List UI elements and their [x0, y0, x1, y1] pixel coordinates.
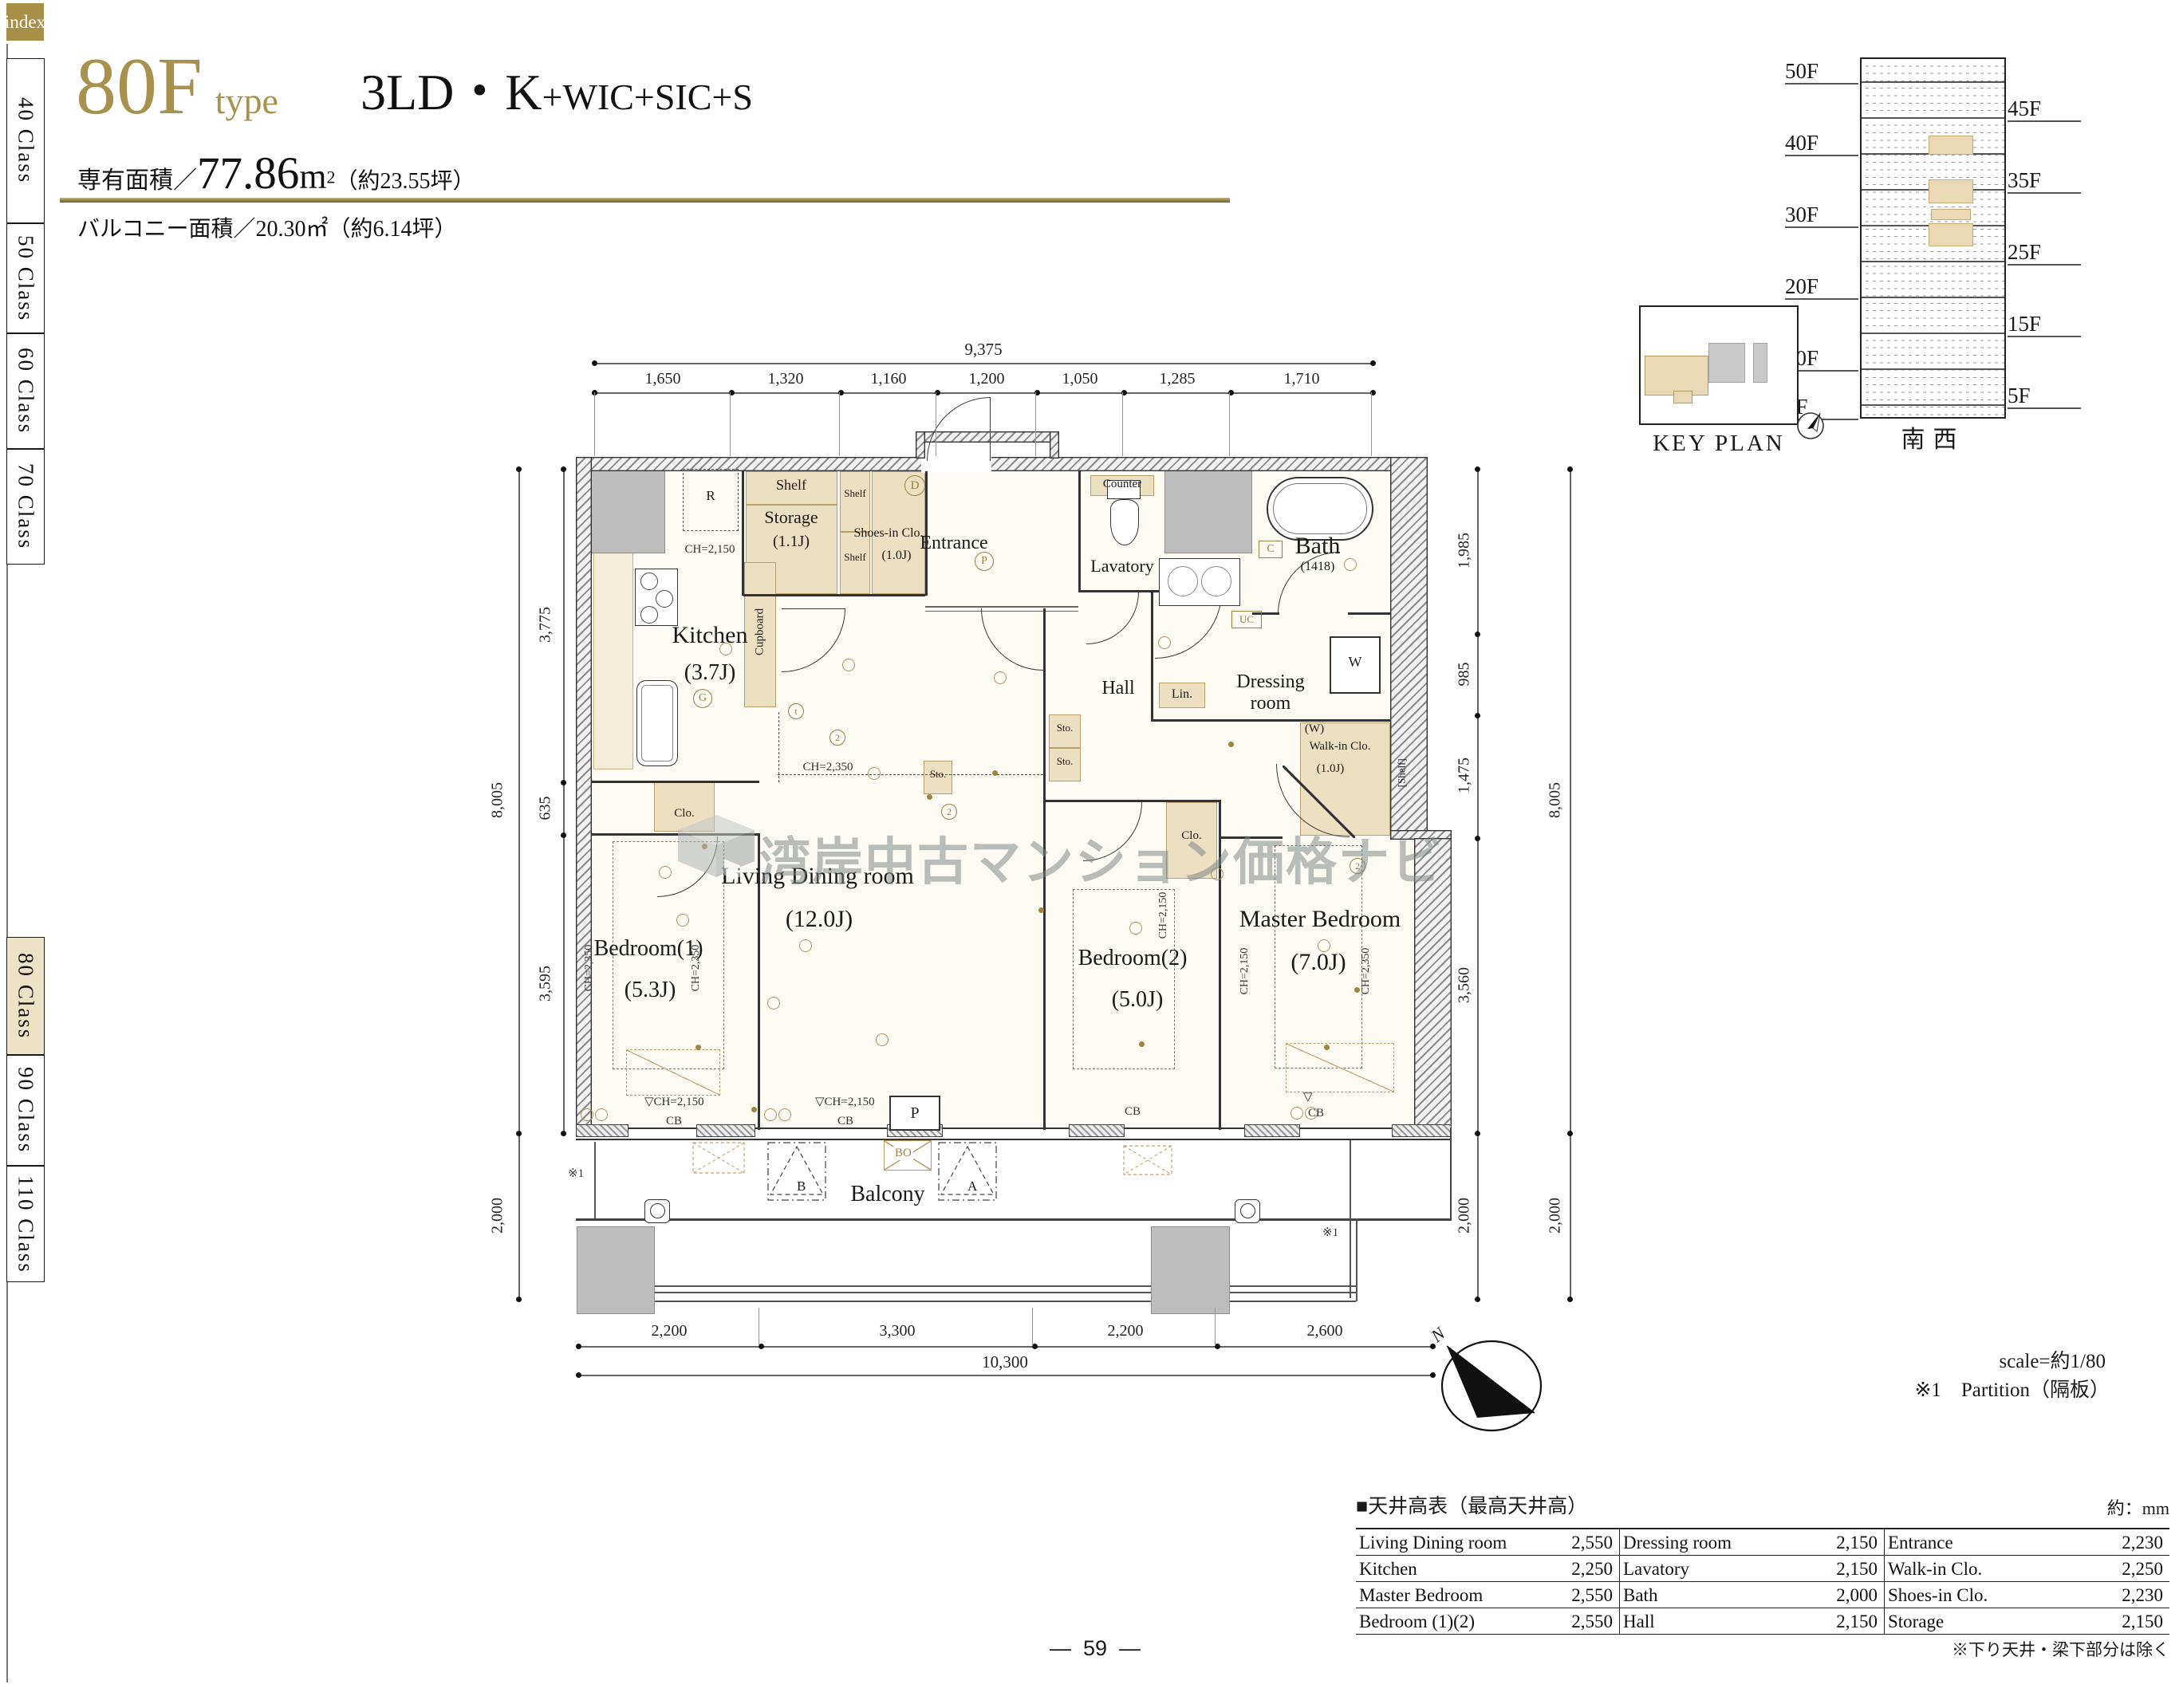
balcony-partition [1350, 1140, 1351, 1298]
vanity-bowl [1168, 566, 1198, 596]
fixture-icon [1290, 1107, 1303, 1120]
walkin-shelf-label: [Shelf] [1397, 741, 1409, 805]
fixture-icon [719, 643, 732, 655]
dim-bottom-total: 10,300 [982, 1352, 1028, 1372]
floor-label-20f: 20F [1785, 274, 1858, 300]
washer-label: W [1349, 654, 1362, 670]
marker-d: D [904, 475, 925, 496]
sidebar-item-label: 110 Class [14, 1175, 38, 1273]
table-cell: Bath [1619, 1582, 1804, 1608]
partition-note: ※1 [568, 1166, 584, 1181]
table-cell: 2,150 [1804, 1556, 1884, 1582]
sidebar-item-50class[interactable]: 50 Class [6, 223, 45, 333]
dim-top-seg: 1,650 [645, 370, 681, 388]
fixture-icon [876, 1033, 889, 1046]
balcony-area: バルコニー面積／20.30㎡（約6.14坪） [77, 217, 456, 242]
room-label-hall: Hall [1101, 678, 1134, 699]
futon-rack-icon [692, 1142, 745, 1174]
dim-line [578, 1346, 1432, 1348]
balcony-rail [1230, 1301, 1356, 1302]
sidebar-item-60class[interactable]: 60 Class [6, 333, 45, 449]
sidebar-item-label: 60 Class [14, 348, 38, 434]
ch-label-bedroom1-left: CH=2,350 [583, 932, 596, 1004]
page-number-dash: — [1050, 1636, 1071, 1660]
fixture-icon [868, 767, 881, 780]
room-label-bedroom2: Bedroom(2) [1078, 946, 1188, 970]
floor-label-45f: 45F [2008, 96, 2081, 122]
fridge-label: R [706, 488, 715, 503]
entrance-step-line [925, 606, 1078, 608]
dim-line [518, 469, 520, 1299]
dim-top-total: 9,375 [964, 340, 1002, 360]
dim-dot [1567, 1131, 1573, 1136]
triangle-icon: ▽ [815, 1096, 825, 1108]
window-sash [576, 1124, 628, 1137]
fixture-icon [595, 1108, 608, 1121]
table-cell: Hall [1619, 1608, 1804, 1635]
dim-top-seg: 1,050 [1062, 370, 1098, 388]
table-cell: 2,550 [1538, 1608, 1619, 1635]
room-label-kitchen: Kitchen [672, 622, 748, 649]
layout-main: 3LD・K [361, 64, 542, 120]
sidebar-item-110class[interactable]: 110 Class [6, 1166, 45, 1282]
column [1151, 1226, 1230, 1314]
dim-ext [730, 392, 731, 456]
unit-highlight [1929, 223, 1973, 246]
linen-label: Lin. [1172, 687, 1192, 702]
sidebar-item-label: 50 Class [14, 235, 38, 321]
wall-bath-dressing [1348, 612, 1390, 615]
keyplan-compass-icon [1793, 405, 1831, 443]
window-sash [1392, 1124, 1452, 1137]
unit-highlight [1931, 209, 1971, 220]
exclusive-area: 専有面積／77.86m2（約23.55坪） [77, 148, 475, 199]
index-badge[interactable]: index [6, 3, 44, 41]
table-cell: 2,150 [2082, 1608, 2169, 1635]
fixture-icon [695, 1045, 701, 1050]
dim-right-seg: 985 [1456, 643, 1474, 706]
balcony-rail [655, 1301, 1151, 1302]
balcony-right-edge [1450, 1128, 1452, 1221]
hatch-marker-b-label: B [797, 1179, 806, 1194]
area-value: 77.86 [197, 148, 299, 199]
dim-dot [516, 1297, 522, 1302]
bed-outline [1286, 1043, 1394, 1092]
wall-dressing-bottom [1151, 719, 1390, 722]
balcony-rail-end [1356, 1218, 1357, 1301]
table-cell: Bedroom (1)(2) [1356, 1608, 1538, 1635]
compass-icon [1436, 1336, 1547, 1435]
dim-top-seg: 1,710 [1284, 370, 1320, 388]
dim-dot [1032, 1344, 1038, 1349]
floor-label-35f: 35F [2008, 168, 2081, 194]
shelf-box [840, 471, 870, 532]
marker-2: 2 [829, 730, 845, 746]
floor-label-25f: 25F [2008, 240, 2081, 266]
table-cell: 2,150 [1804, 1608, 1884, 1635]
dim-top-seg: 1,200 [969, 370, 1005, 388]
dim-dot [576, 1372, 581, 1378]
bo-marker-label: BO [893, 1147, 913, 1160]
dim-dot [561, 1131, 566, 1136]
dim-top-seg: 1,285 [1160, 370, 1196, 388]
fixture-icon [1139, 1041, 1145, 1047]
keyplan-neighbor-block [1708, 343, 1745, 383]
table-cell: Kitchen [1356, 1556, 1538, 1582]
table-cell: Living Dining room [1356, 1528, 1538, 1556]
dim-line [594, 392, 1373, 394]
storage-small-label: Sto. [1057, 722, 1074, 734]
table-cell: 2,150 [1804, 1528, 1884, 1556]
dim-dot [1475, 632, 1480, 637]
floor-line [1862, 404, 2004, 406]
wall-kitchen-right [742, 471, 744, 596]
fixture-icon [581, 1108, 593, 1121]
dim-bottom-seg: 2,200 [652, 1322, 688, 1340]
floor-line [1862, 117, 2004, 119]
room-label-shoes: Shoes-in Clo. [853, 526, 923, 541]
room-size-storage: (1.1J) [773, 533, 810, 550]
dim-dot [1215, 1344, 1220, 1349]
unit-highlight [1929, 136, 1973, 155]
keyplan-building-footprint [1673, 391, 1692, 403]
bathtub-inner [1273, 483, 1367, 534]
fixture-icon [1305, 1107, 1318, 1120]
dim-dot [1475, 466, 1480, 472]
dim-dot [561, 466, 566, 472]
door-entrance [927, 397, 991, 461]
ceiling-table: Living Dining room 2,550 Dressing room 2… [1356, 1528, 2169, 1635]
unit-highlight [1929, 179, 1973, 203]
room-label-dressing: Dressing room [1215, 671, 1326, 714]
keyplan-title: KEY PLAN [1639, 431, 1799, 456]
bed-outline [626, 1049, 720, 1096]
balcony-outer-line [576, 1218, 1452, 1221]
balcony-rail [1230, 1285, 1356, 1287]
dim-right-balcony: 2,000 [1456, 1184, 1474, 1248]
dim-dot [1430, 1372, 1436, 1378]
cb-label: CB [666, 1115, 682, 1128]
room-label-bath: Bath [1295, 533, 1341, 560]
page-number-value: 59 [1083, 1636, 1107, 1660]
ch-boundary-living [778, 774, 1043, 775]
dim-dot [1567, 1297, 1573, 1302]
balcony-partition [594, 1142, 596, 1218]
dim-left-seg: 3,775 [537, 593, 555, 657]
floor-line [1862, 81, 2004, 83]
area-tsubo: （約23.55坪） [335, 169, 475, 194]
table-cell: Entrance [1884, 1528, 2082, 1556]
dim-left-seg: 3,595 [537, 952, 555, 1016]
stove-burner [640, 606, 658, 624]
ch-label-living-bottom: ▽CH=2,150 [815, 1094, 875, 1109]
table-cell: 2,230 [2082, 1528, 2169, 1556]
sidebar-item-label: 70 Class [14, 463, 38, 549]
gold-rule [60, 198, 1230, 203]
ch-label-kitchen: CH=2,150 [684, 543, 735, 557]
dim-dot [1475, 1297, 1480, 1302]
floor-line [1862, 333, 2004, 334]
dim-right-balcony2: 2,000 [1547, 1184, 1565, 1248]
dim-dot [1567, 466, 1573, 472]
fixture-icon [799, 939, 812, 952]
ch-boundary-kitchen [778, 712, 779, 782]
marker-t: t [788, 703, 804, 719]
room-label-storage: Storage [764, 508, 818, 528]
window-sash [696, 1124, 755, 1137]
dim-line [594, 363, 1373, 364]
shelf-label: Shelf [844, 552, 865, 564]
wall-entrance-jog [916, 431, 925, 458]
room-size-bath: (1418) [1301, 560, 1335, 574]
dim-dot [516, 466, 522, 472]
partition-legend: ※1 Partition（隔板） [1850, 1379, 2110, 1402]
fixture-icon [751, 1107, 757, 1112]
dim-bottom-seg: 2,200 [1108, 1322, 1144, 1340]
balcony-rail [1230, 1292, 1356, 1293]
room-size-bedroom2: (5.0J) [1112, 987, 1164, 1012]
fixture-icon [1158, 636, 1171, 649]
ch-label-living-top: CH=2,350 [798, 761, 857, 774]
scale-note: scale=約1/80 [1866, 1351, 2106, 1373]
wall-lavatory-left [1078, 471, 1081, 592]
watermark-logo [678, 815, 755, 877]
table-cell: Master Bedroom [1356, 1582, 1538, 1608]
dim-ext [1371, 392, 1372, 456]
shelf-label: Shelf [776, 477, 806, 493]
dim-top-seg: 1,160 [871, 370, 907, 388]
dim-dot [592, 360, 597, 366]
dim-dot [561, 832, 566, 838]
cb-label: CB [1125, 1105, 1141, 1119]
fixture-icon [764, 1108, 777, 1121]
sidebar-item-label: 90 Class [14, 1067, 38, 1153]
floor-label-30f: 30F [1785, 203, 1858, 228]
dim-ext [759, 1308, 759, 1346]
plan-type-title: 80F type [76, 41, 278, 132]
window-line [576, 1139, 1452, 1140]
kitchen-counter [593, 553, 633, 769]
room-size-master: (7.0J) [1290, 949, 1346, 976]
floor-line [1862, 297, 2004, 298]
dim-left-seg: 635 [537, 777, 555, 840]
stove-burner [640, 573, 658, 590]
room-size-shoes: (1.0J) [882, 549, 912, 563]
ch-label-bedroom1-right: CH=2,350 [690, 932, 703, 1004]
watermark-text: 湾岸中古マンション価格ナビ [759, 821, 1444, 895]
table-cell: 2,000 [1804, 1582, 1884, 1608]
fixture-icon [676, 914, 689, 927]
fixture-icon [1354, 987, 1360, 993]
table-cell: 2,550 [1538, 1528, 1619, 1556]
dim-ext [1215, 1308, 1216, 1346]
layout-sub: +WIC+SIC+S [542, 77, 753, 117]
shelf-label: Shelf [844, 488, 865, 500]
column [587, 461, 665, 553]
elevation-direction: 南西 [1860, 427, 2006, 454]
dim-left-total: 8,005 [489, 769, 507, 832]
dim-right-seg: 1,475 [1456, 744, 1474, 808]
wall-storage-bottom [743, 594, 925, 596]
dim-left-balcony: 2,000 [489, 1184, 507, 1248]
ceiling-table-title: ■天井高表（最高天井高） [1356, 1496, 1587, 1518]
room-label-bedroom1: Bedroom(1) [594, 936, 703, 961]
page: index 40 Class 50 Class 60 Class 70 Clas… [0, 0, 2183, 1708]
floor-label-50f: 50F [1785, 59, 1858, 85]
column [1164, 464, 1252, 553]
dim-ext [1032, 1308, 1033, 1346]
ceiling-table-footnote: ※下り天井・梁下部分は除く [1819, 1641, 2169, 1660]
page-number: — 59 — [1050, 1636, 1141, 1660]
wall-left [576, 457, 592, 1132]
balcony-drain-hole [1240, 1203, 1255, 1218]
wall-entrance-jog [1050, 431, 1059, 458]
dim-ext [839, 392, 840, 456]
balcony-rail [655, 1292, 1151, 1293]
cb-label: CB [837, 1115, 853, 1128]
counter-label: Counter [1103, 478, 1141, 491]
sidebar-item-80class[interactable]: 80 Class [6, 937, 45, 1055]
pipe-space-label: P [910, 1104, 919, 1122]
fixture-icon [1038, 907, 1044, 913]
room-label-lavatory: Lavatory [1090, 557, 1153, 577]
fixture-icon [1344, 558, 1357, 571]
dim-dot [759, 1344, 764, 1349]
room-size-living: (12.0J) [786, 906, 853, 933]
marker-2: 2 [941, 804, 957, 820]
fixture-icon [1318, 939, 1330, 952]
marker-p: P [975, 552, 994, 571]
kitchen-sink [636, 680, 678, 766]
fixture-icon [992, 770, 998, 776]
marker-g: G [693, 689, 712, 708]
floor-label-15f: 15F [2008, 312, 2081, 337]
keyplan-neighbor-block [1753, 343, 1767, 383]
area-label: 専有面積／ [77, 167, 197, 194]
fixture-icon [659, 866, 672, 879]
table-cell: Storage [1884, 1608, 2082, 1635]
page-number-dash: — [1119, 1636, 1141, 1660]
fixture-icon [767, 997, 780, 1009]
dim-dot [1475, 836, 1480, 841]
dim-line [1570, 469, 1571, 1299]
sidebar-item-label: 40 Class [14, 97, 38, 183]
ch-label-master-right: CH=2,350 [1360, 935, 1373, 1007]
triangle-icon: ▽ [1303, 1089, 1313, 1104]
vanity-bowl [1201, 566, 1231, 596]
pipe-space: P [889, 1096, 940, 1131]
dim-ext [1122, 392, 1123, 456]
table-cell: 2,250 [1538, 1556, 1619, 1582]
table-cell: 2,230 [2082, 1582, 2169, 1608]
dim-dot [1430, 1344, 1436, 1349]
floor-label-40f: 40F [1785, 131, 1858, 156]
wall-dressing-left [1151, 592, 1153, 721]
balcony-drain-hole [650, 1203, 665, 1218]
floor-line [1862, 368, 2004, 370]
fixture-icon [842, 659, 855, 671]
dim-right-seg: 3,560 [1456, 954, 1474, 1017]
fixture-icon [927, 794, 932, 800]
floor-label-5f: 5F [2008, 384, 2081, 409]
marker-c: C [1259, 541, 1283, 558]
fixture-icon [1129, 922, 1142, 935]
table-cell: Lavatory [1619, 1556, 1804, 1582]
stove-burner [656, 590, 673, 608]
hatch-marker-a-label: A [967, 1179, 977, 1194]
column [577, 1226, 655, 1314]
ch-label-master-left: CH=2,150 [1239, 935, 1251, 1007]
table-cell: 2,250 [2082, 1556, 2169, 1582]
dim-bottom-seg: 3,300 [880, 1322, 916, 1340]
dim-ext [1229, 392, 1230, 456]
dim-dot [576, 1344, 581, 1349]
fixture-icon [1324, 1045, 1330, 1050]
table-cell: 2,550 [1538, 1582, 1619, 1608]
table-cell: Shoes-in Clo. [1884, 1582, 2082, 1608]
table-cell: Dressing room [1619, 1528, 1804, 1556]
room-label-master: Master Bedroom [1239, 906, 1401, 933]
room-label-balcony: Balcony [850, 1182, 924, 1206]
dim-ext [594, 392, 595, 456]
storage-small-label: Sto. [930, 769, 947, 781]
marker-uc: UC [1231, 611, 1262, 628]
fixture-icon [1228, 742, 1234, 747]
dim-dot [516, 1131, 522, 1136]
layout-title: 3LD・K+WIC+SIC+S [361, 64, 753, 121]
dim-dot [1370, 360, 1376, 366]
ch-label-living-bottom: ▽CH=2,150 [644, 1094, 704, 1109]
table-cell: Walk-in Clo. [1884, 1556, 2082, 1582]
type-code: 80F [76, 41, 203, 132]
balcony-rail [655, 1285, 1151, 1287]
dim-bottom-seg: 2,600 [1307, 1322, 1343, 1340]
dim-right-seg: 1,985 [1456, 519, 1474, 583]
floor-line [1862, 261, 2004, 262]
type-word: type [215, 81, 278, 121]
dim-line [563, 469, 565, 1133]
window-sash [1069, 1124, 1125, 1137]
dim-ext [1035, 392, 1036, 456]
dim-ext [936, 392, 936, 456]
dim-dot [561, 780, 566, 785]
dim-dot [1475, 1131, 1480, 1136]
area-unit: m [299, 157, 326, 196]
partition-note: ※1 [1322, 1225, 1338, 1240]
dim-right-total: 8,005 [1547, 769, 1565, 832]
keyplan-building-footprint [1645, 356, 1708, 396]
ceiling-table-unit: 約：mm [2010, 1499, 2169, 1519]
cupboard-label: Cupboard [754, 600, 767, 663]
area-unit-sup: 2 [326, 167, 335, 187]
room-size-walkin: (1.0J) [1317, 762, 1345, 776]
wall-bedroom1-closet-top [592, 781, 759, 783]
sidebar-item-label: 80 Class [14, 953, 38, 1039]
fixture-icon [778, 1108, 791, 1121]
room-label-walkin: Walk-in Clo. [1309, 740, 1370, 754]
room-size-kitchen: (3.7J) [684, 660, 736, 685]
fixture-icon [994, 671, 1007, 684]
room-size-bedroom1: (5.3J) [625, 978, 676, 1002]
dim-line [578, 1375, 1432, 1376]
sidebar-item-40class[interactable]: 40 Class [6, 58, 45, 223]
sidebar-item-90class[interactable]: 90 Class [6, 1055, 45, 1166]
sidebar-item-70class[interactable]: 70 Class [6, 449, 45, 565]
futon-rack-icon [1123, 1145, 1172, 1175]
toilet-bowl [1110, 499, 1139, 545]
triangle-icon: ▽ [644, 1096, 654, 1108]
dim-line [1477, 469, 1479, 1299]
